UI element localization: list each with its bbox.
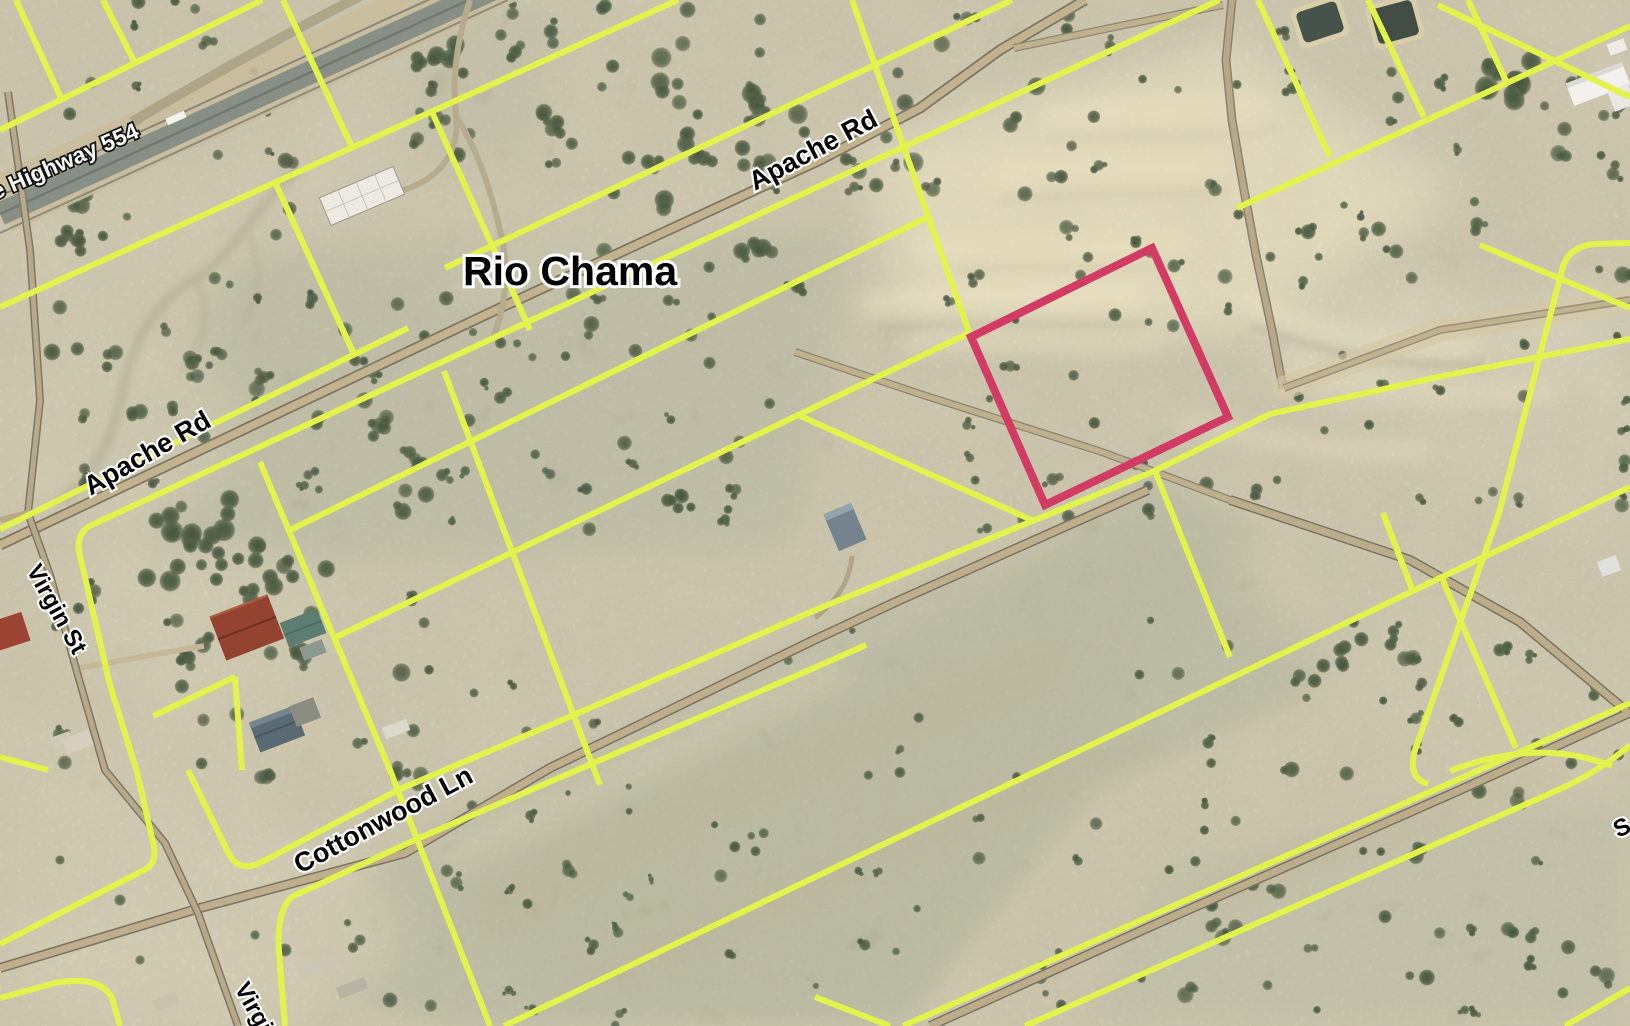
svg-text:Rio Chama: Rio Chama xyxy=(463,248,678,294)
